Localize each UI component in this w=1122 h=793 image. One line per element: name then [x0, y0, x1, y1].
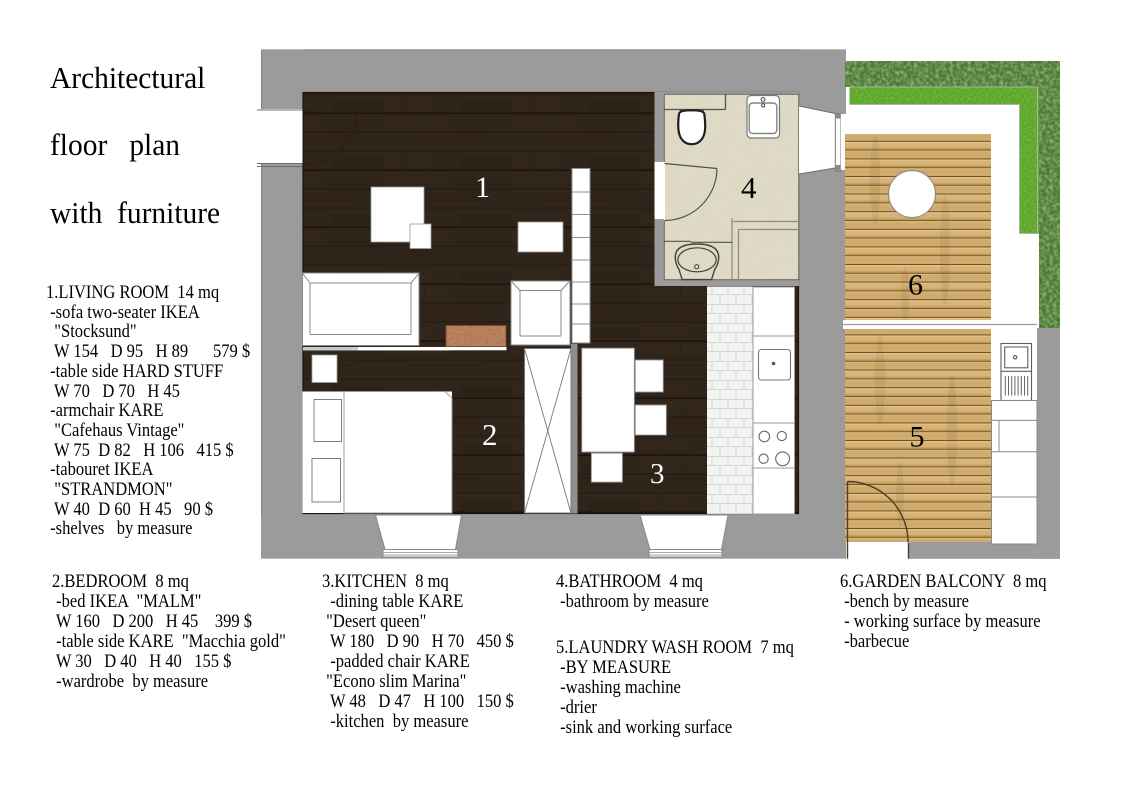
svg-text:3: 3	[650, 458, 665, 490]
svg-text:2: 2	[482, 417, 498, 452]
svg-text:6: 6	[908, 269, 923, 302]
svg-text:4: 4	[741, 170, 757, 205]
svg-text:1: 1	[475, 171, 490, 204]
svg-text:5: 5	[910, 421, 925, 454]
